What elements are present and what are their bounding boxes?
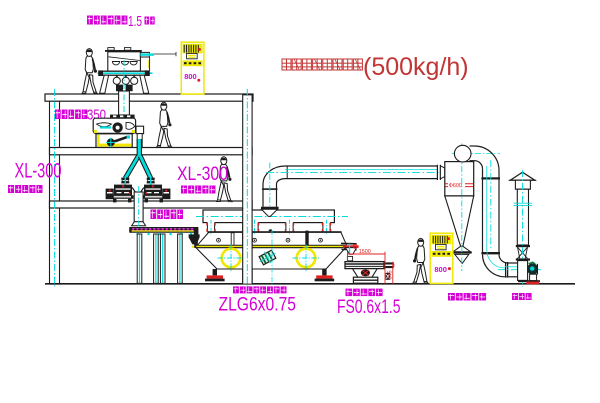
svg-text:FS0.6x1.5: FS0.6x1.5 bbox=[337, 296, 401, 318]
svg-text:XL-300: XL-300 bbox=[177, 164, 228, 185]
svg-text:XL-300: XL-300 bbox=[15, 160, 62, 183]
svg-text:1.5: 1.5 bbox=[128, 13, 142, 30]
svg-text:345: 345 bbox=[387, 270, 393, 279]
svg-text:ZLG6x0.75: ZLG6x0.75 bbox=[219, 294, 297, 316]
svg-text:800: 800 bbox=[184, 72, 197, 81]
svg-text:Φ600: Φ600 bbox=[449, 183, 462, 189]
svg-text:1500: 1500 bbox=[359, 249, 371, 255]
svg-text:(500kg/h): (500kg/h) bbox=[363, 53, 469, 81]
svg-text:800: 800 bbox=[434, 265, 447, 274]
